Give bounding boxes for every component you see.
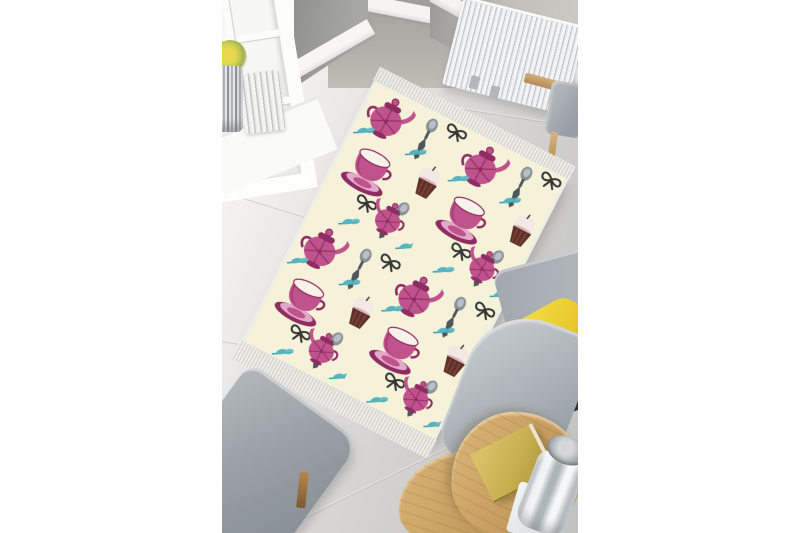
- page: { "image": { "kind": "product-photo", "s…: [0, 0, 800, 533]
- window-radiator: [238, 70, 285, 134]
- flower-vase: [222, 66, 243, 132]
- product-photo: [222, 0, 578, 533]
